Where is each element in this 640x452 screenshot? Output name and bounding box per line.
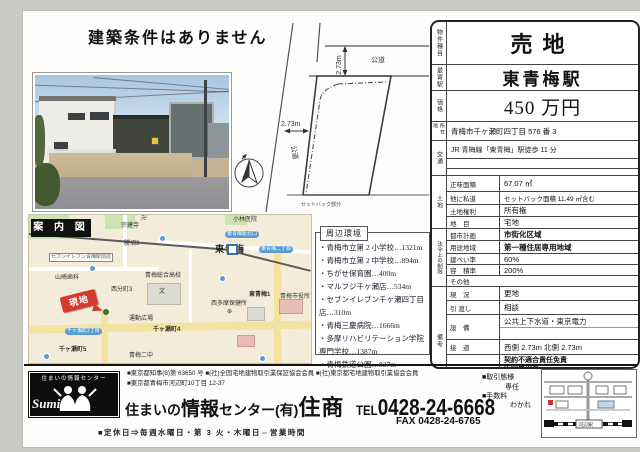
row-value: 市街化区域 bbox=[500, 229, 638, 240]
fee-value: わかれ bbox=[510, 400, 531, 410]
row-label: 設 備 bbox=[447, 315, 500, 339]
list-item: ・多摩リハビリテーション学院専門学校…1387m bbox=[319, 332, 426, 358]
row-value: 西側 2.73m 北側 2.73m bbox=[500, 340, 638, 354]
row-value: 更地 bbox=[500, 287, 638, 300]
row-label: 引 渡し bbox=[447, 301, 500, 314]
map-poi-dot bbox=[43, 353, 50, 360]
far-right-house bbox=[208, 123, 229, 158]
table-row: 現 況 更地 bbox=[447, 287, 638, 301]
company-name-part: 情報 bbox=[181, 394, 219, 421]
table-row: 最寄駅 東青梅駅 bbox=[432, 65, 638, 91]
office-address: ■東京都青梅市河辺町10丁目 12-37 bbox=[127, 379, 462, 389]
row-label: 所在地 bbox=[432, 122, 447, 140]
map-road bbox=[189, 249, 192, 329]
row-value: 公共上下水道・東京電力 bbox=[500, 315, 638, 328]
remarks-section: 備考 現 況 更地 引 渡し 相談 設 備 公共上下水道・東京電力 接 道 西側… bbox=[432, 287, 638, 369]
table-row: 正味面積 67.07 ㎡ bbox=[447, 176, 638, 192]
row-value: 200% bbox=[500, 265, 638, 275]
row-value: 所有権 bbox=[500, 205, 638, 216]
utility-pole bbox=[204, 80, 207, 176]
logo-script: SumiSho bbox=[32, 396, 81, 412]
row-label: 価格 bbox=[432, 91, 447, 121]
company-name: 住商 bbox=[298, 390, 344, 422]
map-callout: セブンイレブン青梅駅前店 bbox=[49, 253, 113, 262]
row-label: 建ぺい率 bbox=[447, 254, 500, 264]
map-label: 小林医院 bbox=[233, 217, 257, 224]
property-table: 物件種目 売地 最寄駅 東青梅駅 価格 450 万円 所在地 青梅市千ヶ瀬町四丁… bbox=[430, 20, 640, 369]
table-row: 他に私道 セットバック面積 11.49 ㎡含む bbox=[447, 192, 638, 205]
table-row: 都市計画 市街化区域 bbox=[447, 229, 638, 241]
empty-row bbox=[447, 169, 638, 175]
street bbox=[35, 177, 229, 209]
list-item: ・青梅三慶病院…1666m bbox=[319, 319, 426, 332]
office-map-drawing: 河辺駅 bbox=[542, 370, 634, 435]
window bbox=[90, 112, 109, 120]
company-logo: 住まいの情報センター SumiSho bbox=[28, 371, 120, 418]
table-row: その他 bbox=[447, 276, 638, 286]
table-row: 価格 450 万円 bbox=[432, 91, 638, 122]
company-name-part: 住まいの bbox=[125, 400, 181, 420]
nearest-station: 東青梅駅 bbox=[447, 65, 638, 90]
map-poi-dot bbox=[159, 235, 166, 242]
group-label: 備考 bbox=[432, 287, 447, 369]
row-label: その他 bbox=[447, 276, 638, 286]
row-value: セットバック面積 11.49 ㎡含む bbox=[500, 192, 638, 204]
access-cell: JR 青梅線「東青梅」駅徒歩 11 分 bbox=[447, 141, 638, 175]
license-info: ■東京都知事(8)第 63650 号 ■(社)全国宅地建物取引業保証協会会員 ■… bbox=[127, 369, 462, 388]
office-access-map: 河辺駅 bbox=[541, 369, 637, 438]
site-location-dot bbox=[103, 309, 109, 315]
list-item: ・青梅市立第 2 小学校…1321m bbox=[319, 241, 426, 254]
building bbox=[247, 307, 265, 321]
dimension-left: 2.73m bbox=[281, 121, 301, 128]
bush bbox=[35, 115, 45, 166]
group-label: 土地 bbox=[432, 176, 447, 228]
row-label: 交通 bbox=[432, 141, 447, 175]
map-bus-stop-label: 東青梅二丁目 bbox=[259, 246, 293, 253]
list-item: ・セブンイレブン千ヶ瀬四丁目店…310m bbox=[319, 293, 426, 319]
group-label: 法令上の制限 bbox=[432, 229, 447, 286]
address-value: 青梅市千ヶ瀬町四丁目 576 番 3 bbox=[447, 122, 638, 140]
logo-caption: 住まいの情報センター bbox=[28, 374, 120, 382]
company-name-part: センター(有) bbox=[219, 400, 298, 420]
map-title: 案 内 図 bbox=[31, 219, 91, 237]
empty-row bbox=[447, 159, 638, 169]
city-hall-building bbox=[279, 299, 303, 314]
map-label: 千ヶ瀬町5 bbox=[59, 347, 86, 354]
map-label: 運動広場 bbox=[129, 316, 153, 323]
empty-row bbox=[500, 328, 638, 339]
map-bus-stop-label: 東青梅駅北口 bbox=[225, 231, 259, 238]
map-label: 山崎歯科 bbox=[55, 275, 79, 282]
row-label: 用途地域 bbox=[447, 241, 500, 253]
map-label: 青梅総合高校 bbox=[145, 273, 181, 280]
road-label-top: 公道 bbox=[371, 55, 385, 64]
table-row: 物件種目 売地 bbox=[432, 22, 638, 65]
fee-label: ■手数料 bbox=[482, 391, 507, 401]
table-row: 設 備 公共上下水道・東京電力 bbox=[447, 315, 638, 340]
list-item: ・青梅市立第 2 中学校…894m bbox=[319, 254, 426, 267]
row-label: 他に私道 bbox=[447, 192, 500, 204]
map-label: 勝沼3 bbox=[124, 241, 139, 248]
surroundings-list: ・青梅市立第 2 小学校…1321m ・青梅市立第 2 中学校…894m ・ちが… bbox=[319, 241, 426, 371]
table-row: その他 契約不適合責任免責 告知事項有 ◆図面と現況に相違の有る場合は 現況を優… bbox=[447, 355, 638, 369]
remarks-other: 契約不適合責任免責 告知事項有 ◆図面と現況に相違の有る場合は 現況を優先としま… bbox=[500, 355, 638, 369]
footer-divider bbox=[24, 364, 638, 366]
row-value: 60% bbox=[500, 254, 638, 264]
row-label: 都市計画 bbox=[447, 229, 500, 240]
map-label: 西多摩保健所 bbox=[211, 301, 247, 308]
row-label: 最寄駅 bbox=[432, 65, 447, 90]
map-label: 千ヶ瀬町4 bbox=[153, 327, 180, 334]
yellow-sign bbox=[151, 137, 159, 146]
map-poi-dot bbox=[89, 265, 96, 272]
row-value: 相談 bbox=[500, 301, 638, 314]
office-map-station-label: 河辺駅 bbox=[578, 422, 593, 429]
dimension-top: 2.73m bbox=[336, 55, 343, 75]
access-value: JR 青梅線「東青梅」駅徒歩 11 分 bbox=[447, 141, 638, 159]
bush bbox=[35, 163, 60, 206]
guide-map: 宗建寺 卍 勝沼3 小林医院 山崎歯科 西分町3 青梅総合高校 文 西多摩保健所… bbox=[28, 214, 312, 364]
list-item: ・マルフジ千ヶ瀬店…534m bbox=[319, 280, 426, 293]
table-row: 交通 JR 青梅線「東青梅」駅徒歩 11 分 bbox=[432, 141, 638, 176]
deal-type-label: ■取引態様 bbox=[482, 372, 514, 382]
map-label: 東青梅1 bbox=[249, 292, 270, 299]
temple-symbol: 卍 bbox=[141, 216, 147, 222]
map-label: 青梅市役所 bbox=[280, 294, 310, 301]
tel-label: TEL bbox=[356, 402, 378, 418]
row-label: 土地権利 bbox=[447, 205, 500, 216]
school-symbol: 文 bbox=[159, 289, 165, 296]
row-value: 第一種住居専用地域 bbox=[500, 241, 638, 253]
business-hours: ■定休日⇒毎週水曜日・第 3 火・木曜日⇔営業時間 bbox=[98, 427, 306, 438]
station-icon bbox=[227, 244, 238, 255]
table-row: 容 積率 200% bbox=[447, 265, 638, 276]
map-poi-dot bbox=[259, 355, 266, 362]
surroundings-box: 周辺環境 ・青梅市立第 2 小学校…1321m ・青梅市立第 2 中学校…894… bbox=[315, 232, 430, 355]
map-bus-stop-label: 千ヶ瀬町2丁目 bbox=[65, 328, 102, 335]
vacant-lot bbox=[49, 153, 193, 180]
window bbox=[68, 113, 85, 120]
list-item: ・ちがせ保育園…400m bbox=[319, 267, 426, 280]
price-value: 450 万円 bbox=[447, 91, 638, 121]
row-value: 宅地 bbox=[500, 217, 638, 228]
site-plan-diagram: 2.73m 2.73m 公道 公道 セットバック部分 bbox=[233, 18, 429, 216]
law-section: 法令上の制限 都市計画 市街化区域 用途地域 第一種住居専用地域 建ぺい率 60… bbox=[432, 229, 638, 287]
table-row: 土地権利 所有権 bbox=[447, 205, 638, 217]
table-row: 建ぺい率 60% bbox=[447, 254, 638, 265]
map-label: 宗建寺 bbox=[121, 223, 139, 230]
row-label: 現 況 bbox=[447, 287, 500, 300]
table-row: 所在地 青梅市千ヶ瀬町四丁目 576 番 3 bbox=[432, 122, 638, 141]
row-label: その他 bbox=[447, 355, 500, 369]
setback-label: セットバック部分 bbox=[301, 201, 341, 208]
fax-number: FAX 0428-24-6765 bbox=[396, 416, 481, 427]
row-label: 物件種目 bbox=[432, 22, 447, 64]
land-section: 土地 正味面積 67.07 ㎡ 他に私道 セットバック面積 11.49 ㎡含む … bbox=[432, 176, 638, 229]
row-label: 容 積率 bbox=[447, 265, 500, 275]
table-row: 地 目 宅地 bbox=[447, 217, 638, 228]
row-value: 67.07 ㎡ bbox=[500, 176, 638, 191]
scanned-flyer: { "headline": "建築条件はありません", "site_plan":… bbox=[0, 0, 640, 452]
table-row: 用途地域 第一種住居専用地域 bbox=[447, 241, 638, 254]
license-line: ■東京都知事(8)第 63650 号 ■(社)全国宅地建物取引業保証協会会員 ■… bbox=[127, 369, 462, 379]
compass-icon bbox=[235, 154, 263, 187]
health-office-symbol: ⊕ bbox=[227, 309, 232, 316]
property-photo bbox=[32, 72, 232, 212]
road-label-left: 公道 bbox=[289, 145, 300, 160]
surroundings-title: 周辺環境 bbox=[320, 226, 368, 241]
map-label: 西分町3 bbox=[111, 287, 132, 294]
row-label: 地 目 bbox=[447, 217, 500, 228]
photo-scene bbox=[35, 75, 229, 209]
table-row: 引 渡し 相談 bbox=[447, 301, 638, 315]
map-label: 青梅二中 bbox=[129, 353, 153, 360]
table-row: 接 道 西側 2.73m 北側 2.73m bbox=[447, 340, 638, 355]
map-road bbox=[101, 310, 108, 363]
row-label: 正味面積 bbox=[447, 176, 500, 191]
map-poi-dot bbox=[219, 275, 226, 282]
building bbox=[237, 335, 255, 347]
row-label: 接 道 bbox=[447, 340, 500, 354]
property-type: 売地 bbox=[447, 22, 638, 64]
